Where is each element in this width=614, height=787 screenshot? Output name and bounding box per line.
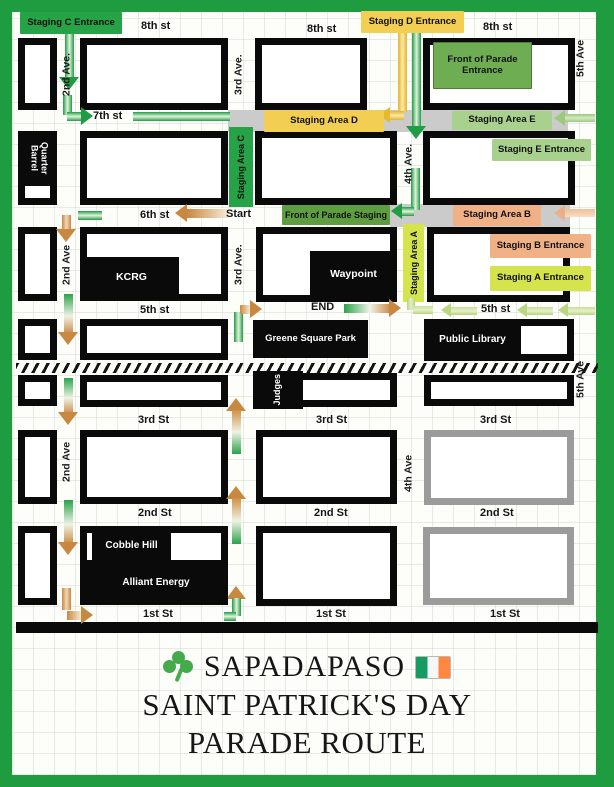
organization-name: SAPADAPASO	[204, 650, 405, 684]
avenue-label-2nd-ave-top: 2nd Ave.	[58, 50, 75, 100]
route-bar-7th-st	[133, 112, 230, 121]
arrow-head	[554, 110, 565, 126]
city-block-gray	[424, 430, 574, 505]
alliant-energy-label: Alliant Energy	[122, 577, 189, 588]
arrow-head	[58, 412, 78, 425]
arrow-head	[81, 606, 93, 624]
avenue-label-4th-ave-bottom: 4th Ave	[400, 452, 417, 494]
front-of-parade-staging-tag: Front of Parade Staging	[282, 205, 390, 225]
quarter-barrel-building: Quarter Barrel	[18, 131, 53, 186]
arrow-shaft	[224, 612, 236, 621]
waypoint-building: Waypoint	[310, 251, 397, 298]
arrow-head	[558, 303, 568, 317]
cobble-hill-building: Cobble Hill	[92, 531, 171, 560]
avenue-label-4th-ave-top: 4th Ave.	[400, 143, 417, 185]
street-label-5th-st-left: 5th st	[140, 304, 169, 316]
arrow-shaft	[527, 307, 553, 315]
arrow-shaft	[64, 294, 73, 334]
ireland-flag-icon	[415, 656, 451, 679]
railroad-track	[16, 363, 598, 373]
title-block: SAPADAPASO SAINT PATRICK'S DAY PARADE RO…	[0, 650, 614, 761]
waypoint-label: Waypoint	[330, 269, 377, 281]
arrow-shaft	[62, 215, 71, 230]
judges-label: Judges	[273, 374, 283, 406]
quarter-barrel-label: Quarter Barrel	[23, 131, 49, 186]
staging-area-c-strip: Staging Area C	[229, 127, 253, 207]
staging-area-a-label: Staging Area A	[409, 231, 419, 295]
staging-area-d-tag: Staging Area D	[264, 110, 384, 132]
kcrg-building: KCRG	[84, 257, 179, 298]
street-label-3rd-st-3: 3rd St	[480, 414, 511, 426]
arrow-shaft	[568, 307, 595, 315]
staging-a-entrance-tag: Staging A Entrance	[490, 266, 591, 291]
avenue-label-2nd-ave-bottom: 2nd Ave	[58, 436, 75, 488]
street-label-1st-st-3: 1st St	[490, 608, 520, 620]
arrow-head	[441, 303, 451, 317]
street-label-5th-st-right: 5th st	[481, 303, 510, 315]
street-label-3rd-st-2: 3rd St	[316, 414, 347, 426]
staging-area-c-label: Staging Area C	[236, 135, 246, 199]
city-block	[80, 131, 228, 205]
arrow-head	[389, 299, 401, 317]
arrow-shaft	[62, 588, 71, 610]
arrow-shaft	[64, 500, 73, 544]
city-block	[18, 319, 57, 360]
street-label-8th-st-3: 8th st	[483, 21, 512, 33]
street-label-2nd-st-3: 2nd St	[480, 507, 514, 519]
arrow-head	[406, 126, 426, 139]
title-line-1: SAPADAPASO	[0, 650, 614, 684]
arrow-shaft	[402, 207, 414, 216]
alliant-energy-building: Alliant Energy	[84, 560, 228, 605]
arrow-shaft	[64, 378, 73, 414]
city-block	[18, 430, 57, 504]
staging-area-a-strip: Staging Area A	[403, 224, 424, 302]
arrow-shaft	[67, 611, 81, 620]
staging-c-entrance-tag: Staging C Entrance	[20, 12, 122, 34]
city-block	[255, 38, 367, 110]
front-of-parade-entrance-tag: Front of Parade Entrance	[433, 42, 532, 89]
arrow-shaft	[344, 304, 391, 313]
city-block	[18, 526, 57, 605]
staging-e-entrance-tag: Staging E Entrance	[492, 139, 591, 161]
street-label-1st-st-2: 1st St	[316, 608, 346, 620]
public-library-building: Public Library	[424, 320, 521, 358]
street-label-1st-st-1: 1st St	[143, 608, 173, 620]
city-block	[80, 430, 228, 504]
title-line-3: PARADE ROUTE	[0, 725, 614, 761]
street-label-6th-st: 6th st	[140, 209, 169, 221]
title-line-2: SAINT PATRICK'S DAY	[0, 687, 614, 723]
avenue-label-2nd-ave-mid: 2nd Ave	[58, 241, 75, 289]
route-start-label: Start	[226, 208, 251, 220]
shamrock-icon	[163, 651, 194, 684]
arrow-shaft	[565, 209, 595, 217]
arrow-head	[391, 203, 402, 219]
city-block	[80, 38, 228, 110]
arrow-head	[58, 542, 78, 555]
city-block	[255, 131, 397, 205]
city-block	[18, 375, 57, 406]
city-block-gray	[423, 527, 574, 605]
route-end-label: END	[311, 301, 334, 313]
greene-square-park: Greene Square Park	[253, 320, 368, 358]
arrow-head	[58, 332, 78, 345]
arrow-shaft	[390, 111, 404, 120]
arrow-shaft	[451, 307, 477, 315]
staging-area-b-tag: Staging Area B	[453, 205, 541, 226]
city-block	[18, 38, 57, 110]
arrow-head	[250, 300, 262, 318]
avenue-label-5th-ave-bottom: 5th Ave	[572, 360, 589, 398]
city-block	[256, 526, 397, 606]
street-label-8th-st-1: 8th st	[141, 20, 170, 32]
parade-route-map: Staging Area C Staging Area A	[0, 0, 614, 787]
street-label-3rd-st-1: 3rd St	[138, 414, 169, 426]
arrow-shaft	[67, 112, 81, 121]
arrow-shaft	[234, 312, 243, 342]
public-library-label: Public Library	[439, 334, 506, 345]
arrow-shaft	[398, 32, 407, 112]
avenue-label-3rd-ave-mid: 3rd Ave.	[230, 240, 247, 290]
south-boundary-road	[16, 622, 598, 633]
arrow-head	[175, 204, 187, 222]
cobble-hill-label: Cobble Hill	[105, 540, 157, 551]
staging-b-entrance-tag: Staging B Entrance	[490, 234, 591, 258]
arrow-shaft	[413, 306, 433, 314]
arrow-shaft	[565, 114, 595, 122]
arrow-shaft	[78, 211, 102, 220]
arrow-head	[517, 303, 527, 317]
avenue-label-3rd-ave-top: 3rd Ave.	[230, 50, 247, 100]
arrow-shaft	[187, 209, 228, 218]
arrow-head	[81, 107, 93, 125]
arrow-head	[554, 205, 565, 221]
city-block	[256, 430, 397, 504]
staging-d-entrance-tag: Staging D Entrance	[361, 11, 464, 33]
avenue-label-5th-ave-top: 5th Ave	[572, 38, 589, 78]
arrow-shaft	[232, 498, 241, 544]
arrow-shaft	[240, 305, 250, 314]
staging-area-e-tag: Staging Area E	[452, 111, 552, 130]
street-label-2nd-st-2: 2nd St	[314, 507, 348, 519]
greene-square-park-label: Greene Square Park	[265, 334, 356, 344]
judges-stand: Judges	[253, 371, 303, 409]
city-block	[80, 319, 228, 360]
arrow-shaft	[412, 32, 421, 128]
city-block	[18, 227, 57, 301]
kcrg-label: KCRG	[116, 272, 147, 284]
city-block	[80, 375, 228, 407]
arrow-shaft	[232, 410, 241, 454]
street-label-2nd-st-1: 2nd St	[138, 507, 172, 519]
city-block	[424, 375, 574, 406]
street-label-8th-st-2: 8th st	[307, 23, 336, 35]
street-label-7th-st: 7th st	[93, 110, 122, 122]
